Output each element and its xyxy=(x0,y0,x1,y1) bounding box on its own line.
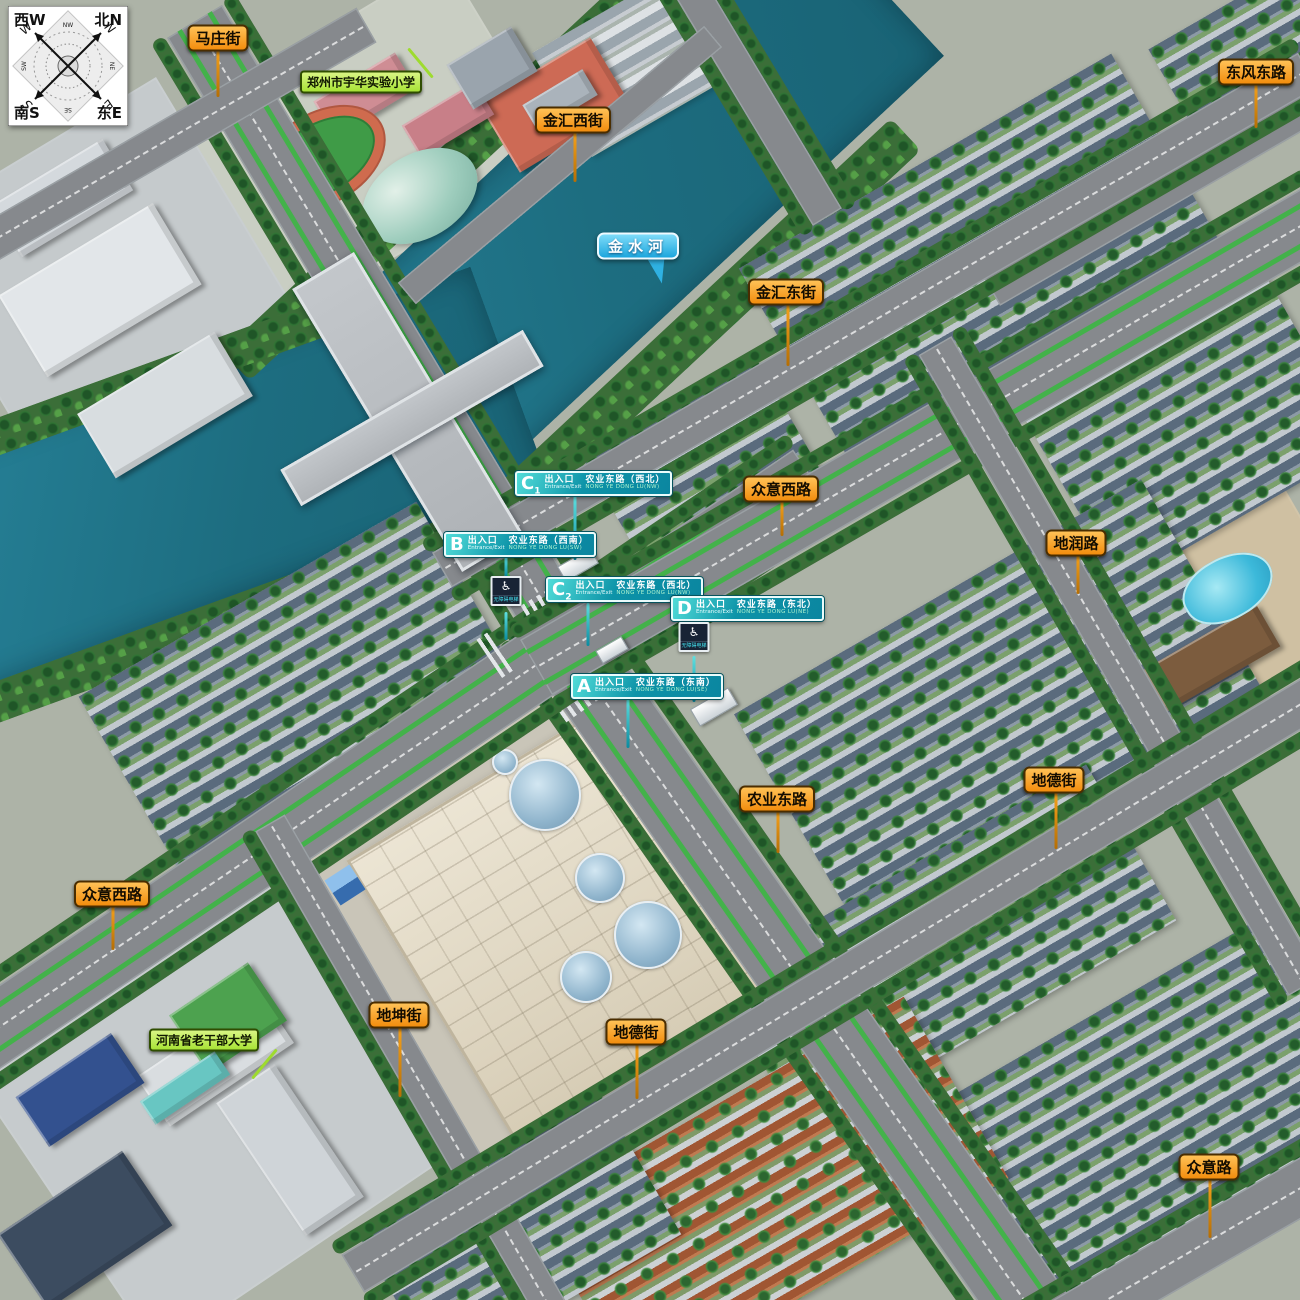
entrance-type: 出入口Entrance/Exit xyxy=(575,580,612,599)
accessible-elevator-label: 无障碍电梯 xyxy=(493,595,520,604)
label-pointer xyxy=(1055,792,1058,849)
entrance-road: 农业东路（东北）NONG YE DONG LU(NE) xyxy=(737,599,817,618)
mall-skylight xyxy=(509,759,581,831)
accessible-elevator-label: 无障碍电梯 xyxy=(681,641,708,650)
compass: W N S E NW NE SE SW 西W 北N 南S 东E xyxy=(8,6,128,126)
compass-south-label: 南S xyxy=(14,102,40,123)
metro-entrance-sign-b[interactable]: B 出入口Entrance/Exit 农业东路（西南）NONG YE DONG … xyxy=(444,532,596,557)
street-label-zhongyixilu-west[interactable]: 众意西路 xyxy=(74,881,150,908)
label-pointer xyxy=(217,50,220,97)
label-pointer xyxy=(636,1044,639,1099)
metro-entrance-sign-a[interactable]: A 出入口Entrance/Exit 农业东路（东南）NONG YE DONG … xyxy=(571,674,723,699)
entrance-type: 出入口Entrance/Exit xyxy=(544,474,581,493)
entrance-type: 出入口Entrance/Exit xyxy=(595,677,632,696)
street-label-jinhuixijie[interactable]: 金汇西街 xyxy=(535,107,611,134)
label-pointer xyxy=(777,811,780,853)
svg-text:NE: NE xyxy=(108,62,115,70)
metro-entrance-sign-d[interactable]: D 出入口Entrance/Exit 农业东路（东北）NONG YE DONG … xyxy=(671,596,824,621)
sign-pole xyxy=(505,612,508,640)
compass-north-label: 北N xyxy=(94,9,122,30)
label-pointer xyxy=(112,906,115,950)
sign-pole xyxy=(505,556,508,577)
svg-text:SE: SE xyxy=(64,106,72,113)
river-label[interactable]: 金水河 xyxy=(597,233,679,260)
label-pointer xyxy=(781,501,784,536)
mall-skylight xyxy=(614,901,682,969)
entrance-letter: D xyxy=(677,599,692,618)
poi-label-university[interactable]: 河南省老干部大学 xyxy=(149,1029,259,1052)
metro-entrance-sign-c1[interactable]: C1 出入口Entrance/Exit 农业东路（西北）NONG YE DONG… xyxy=(515,471,672,496)
entrance-letter: B xyxy=(450,535,464,554)
street-label-didejie-south[interactable]: 地德街 xyxy=(605,1019,666,1046)
label-pointer xyxy=(1077,555,1080,594)
map-canvas[interactable]: 马庄街 金汇西街 金汇东街 东风东路 众意西路 地润路 地德街 农业东路 众意西… xyxy=(0,0,1300,1300)
wheelchair-icon: ♿ xyxy=(681,624,708,641)
accessible-elevator-sign[interactable]: ♿ 无障碍电梯 xyxy=(491,576,522,606)
compass-east-label: 东E xyxy=(97,102,122,123)
svg-text:NW: NW xyxy=(63,22,73,29)
entrance-type: 出入口Entrance/Exit xyxy=(696,599,733,618)
entrance-type: 出入口Entrance/Exit xyxy=(468,535,505,554)
street-label-zhongyixilu-ne[interactable]: 众意西路 xyxy=(743,476,819,503)
street-label-didejie-east[interactable]: 地德街 xyxy=(1023,767,1084,794)
entrance-road: 农业东路（西南）NONG YE DONG LU(SW) xyxy=(509,535,589,554)
mall-skylight xyxy=(575,853,625,903)
street-label-dongfengdonglu[interactable]: 东风东路 xyxy=(1218,59,1294,86)
svg-text:SW: SW xyxy=(21,61,28,71)
label-pointer xyxy=(1255,84,1258,128)
entrance-road: 农业东路（东南）NONG YE DONG LU(SE) xyxy=(636,677,716,696)
wheelchair-icon: ♿ xyxy=(493,578,520,595)
street-label-mazhuangjie[interactable]: 马庄街 xyxy=(187,25,248,52)
street-label-dikunjie[interactable]: 地坤街 xyxy=(368,1002,429,1029)
poi-label-school[interactable]: 郑州市宇华实验小学 xyxy=(300,71,422,94)
label-pointer xyxy=(1209,1179,1212,1238)
entrance-letter: A xyxy=(577,677,591,696)
street-label-zhongyilu[interactable]: 众意路 xyxy=(1178,1154,1239,1181)
label-pointer xyxy=(574,132,577,182)
entrance-road: 农业东路（西北）NONG YE DONG LU(NW) xyxy=(585,474,665,493)
mall-skylight xyxy=(560,951,612,1003)
sign-pole xyxy=(627,697,630,748)
label-pointer xyxy=(787,304,790,366)
entrance-letter: C1 xyxy=(521,474,540,493)
sign-pole xyxy=(587,603,590,646)
label-pointer xyxy=(399,1027,402,1097)
entrance-letter: C2 xyxy=(552,580,571,599)
street-label-dirunlu[interactable]: 地润路 xyxy=(1045,530,1106,557)
street-label-jinhuidongjie[interactable]: 金汇东街 xyxy=(748,279,824,306)
compass-west-label: 西W xyxy=(14,9,46,30)
accessible-elevator-sign[interactable]: ♿ 无障碍电梯 xyxy=(679,622,710,652)
street-label-nongyedonglu[interactable]: 农业东路 xyxy=(739,786,815,813)
